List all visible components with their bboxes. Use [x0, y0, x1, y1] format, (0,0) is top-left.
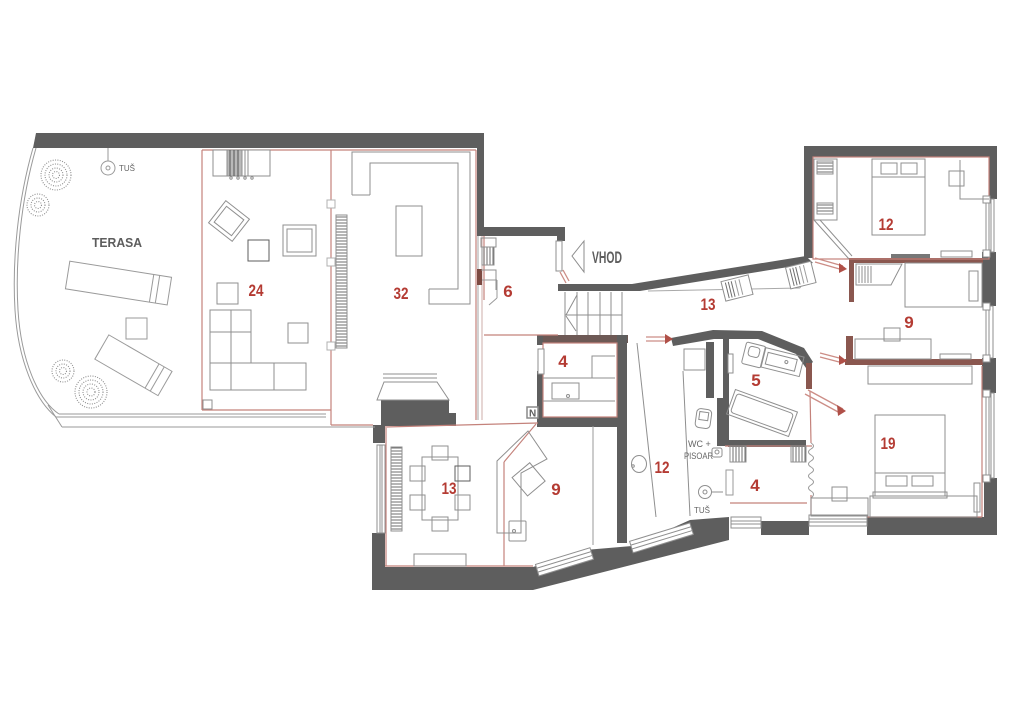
- svg-text:5: 5: [751, 371, 760, 390]
- svg-text:12: 12: [655, 458, 670, 477]
- svg-text:12: 12: [879, 215, 894, 234]
- svg-text:13: 13: [701, 295, 716, 314]
- svg-text:TERASA: TERASA: [92, 235, 143, 250]
- svg-text:32: 32: [394, 284, 409, 303]
- svg-text:4: 4: [558, 352, 568, 371]
- svg-text:6: 6: [503, 282, 512, 301]
- svg-text:19: 19: [881, 434, 896, 453]
- svg-text:VHOD: VHOD: [592, 248, 622, 267]
- svg-text:PISOAR: PISOAR: [684, 451, 713, 461]
- svg-text:4: 4: [750, 476, 760, 495]
- svg-text:24: 24: [249, 281, 264, 300]
- svg-text:9: 9: [551, 480, 560, 499]
- svg-text:N: N: [529, 409, 536, 420]
- svg-text:13: 13: [442, 479, 457, 498]
- svg-text:9: 9: [904, 313, 913, 332]
- svg-text:WC +: WC +: [688, 439, 711, 449]
- svg-text:TUŠ: TUŠ: [694, 506, 710, 515]
- svg-text:TUŠ: TUŠ: [119, 164, 135, 173]
